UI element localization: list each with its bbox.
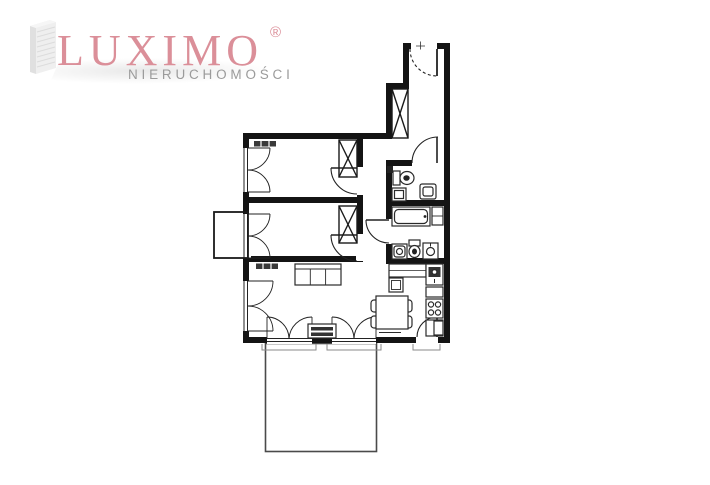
sideboard [308, 324, 336, 338]
bedroom2-wardrobe [339, 206, 357, 243]
living-furniture [295, 264, 341, 338]
bathroom-fixtures [392, 207, 443, 259]
hall-wardrobe [392, 89, 408, 138]
bathtub [392, 207, 430, 226]
page: LUXIMO ® NIERUCHOMOŚCI [0, 0, 710, 485]
kitchen-sink [426, 264, 443, 285]
dining-set [371, 296, 412, 333]
toilet [393, 171, 414, 185]
wc-door [412, 137, 438, 163]
corner-cabinet [434, 321, 443, 335]
floor-plan [0, 0, 710, 485]
duct [387, 166, 393, 173]
wc-fixtures [387, 166, 436, 201]
sofa [295, 264, 341, 285]
wc-washbasin [420, 184, 436, 199]
washing-machine [392, 244, 407, 259]
window-bedroom1 [244, 148, 270, 192]
walls [243, 43, 450, 343]
dining-table [376, 296, 408, 329]
wc-cabinet [392, 188, 406, 201]
radiator-living [256, 264, 278, 270]
stove [426, 299, 443, 318]
radiator-bedroom1 [254, 141, 276, 147]
kitchen-cabinet-mid [426, 287, 443, 297]
bathroom-washbasin [423, 243, 438, 259]
bathroom-toilet [409, 240, 420, 258]
bath-shelf [432, 207, 443, 225]
entrance-door [410, 42, 437, 77]
balcony [266, 344, 377, 452]
bedroom1-door [331, 168, 357, 194]
bathroom-door [366, 220, 389, 243]
bedroom1-wardrobe [339, 140, 357, 177]
